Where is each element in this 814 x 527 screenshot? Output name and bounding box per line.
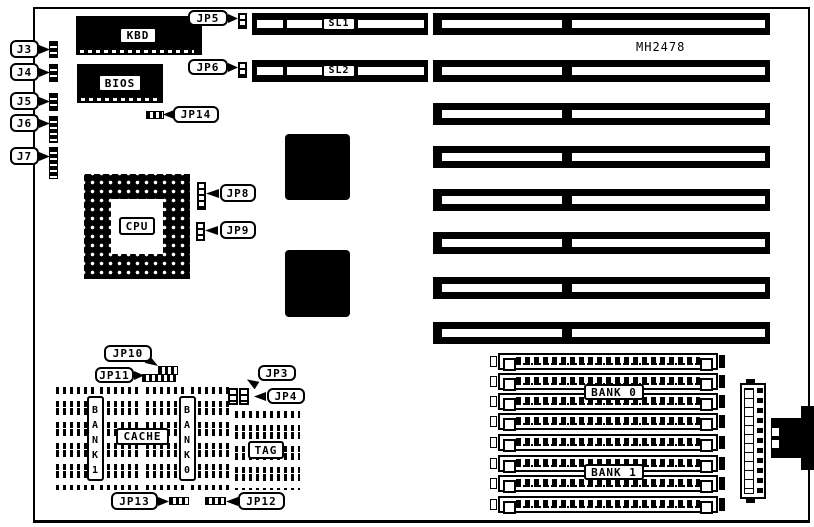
simm-tab [490, 458, 497, 469]
kbd-text: KBD [127, 30, 150, 41]
cpu-text: CPU [126, 221, 149, 232]
isa-slot-1 [433, 13, 770, 35]
connector-label-j3: J3 [10, 40, 39, 58]
jumper-label-jp8: JP8 [220, 184, 256, 202]
jumper-label-jp13: JP13 [111, 492, 158, 510]
jumper-label-jp6: JP6 [188, 59, 228, 75]
sl2-segment [257, 67, 283, 75]
jumper-label-jp11: JP11 [95, 367, 134, 383]
simm-tab [490, 356, 497, 367]
isa-slot-segment [442, 329, 562, 337]
isa-slot-segment [572, 110, 765, 118]
j4-text: J4 [17, 67, 32, 78]
simm-latch [503, 378, 516, 391]
jumper-jp13 [169, 497, 189, 505]
simm-tab [490, 376, 497, 387]
connector-label-j5: J5 [10, 92, 39, 110]
j6-text: J6 [17, 118, 32, 129]
j3-text: J3 [17, 44, 32, 55]
simm-tab [719, 375, 725, 388]
simm-latch [700, 398, 713, 411]
simm-tab [719, 355, 725, 368]
simm-tab [719, 415, 725, 428]
isa-slot-segment [442, 153, 562, 161]
cache-bank0-label: B A N K 0 [179, 396, 196, 481]
simm-contacts [516, 357, 700, 365]
tag-text: TAG [255, 445, 278, 456]
simm-latch [700, 439, 713, 452]
simm-tab [490, 416, 497, 427]
simm-latch [503, 418, 516, 431]
bios-chip-label: BIOS [98, 74, 142, 92]
simm-tab [719, 498, 725, 511]
jumper-label-jp12: JP12 [238, 492, 285, 510]
simm-latch [700, 501, 713, 514]
connector-j7 [49, 147, 58, 179]
simm-contacts [516, 500, 700, 508]
simm-latch [700, 378, 713, 391]
connector-j4 [49, 64, 58, 82]
simm-socket-5 [498, 434, 718, 451]
jumper-label-jp3: JP3 [258, 365, 296, 381]
bios-socket-pins [81, 98, 157, 101]
isa-slot-5 [433, 189, 770, 211]
simm-tab [719, 457, 725, 470]
keyboard-din-connector-plug [771, 418, 802, 458]
sl1-text: SL1 [328, 19, 349, 29]
isa-slot-segment [572, 196, 765, 204]
isa-slot-segment [442, 284, 562, 292]
simm-latch [503, 398, 516, 411]
jumper-label-jp14: JP14 [173, 106, 219, 123]
slot-label-sl1: SL1 [322, 17, 356, 31]
keyboard-din-notch [772, 440, 779, 448]
jumper-jp6 [238, 62, 247, 78]
simm-latch [503, 460, 516, 473]
isa-slot-segment [442, 239, 562, 247]
jumper-jp3-jp4-block2 [239, 388, 249, 405]
memory-bank1-label: BANK 1 [584, 464, 644, 480]
simm-socket-4 [498, 413, 718, 430]
power-connector-key-bottom [746, 498, 755, 503]
isa-slot-segment [442, 196, 562, 204]
simm-tab [719, 477, 725, 490]
kbd-chip-label: KBD [119, 27, 157, 44]
cache-text: CACHE [123, 431, 161, 442]
sl1-segment [358, 20, 424, 28]
connector-j6 [49, 116, 58, 143]
connector-j3 [49, 41, 58, 58]
power-connector [740, 383, 766, 499]
simm-latch [503, 358, 516, 371]
jumper-label-jp9: JP9 [220, 221, 256, 239]
simm-contacts [516, 438, 700, 446]
sl1-segment [257, 20, 283, 28]
jumper-jp3-jp4-block [228, 388, 238, 405]
jumper-jp9 [196, 222, 205, 241]
memory-bank1-text: BANK 1 [591, 467, 637, 478]
connector-label-j6: J6 [10, 114, 39, 132]
chipset-ic-2 [285, 250, 350, 317]
bank0-vertical-text: B A N K 0 [184, 400, 191, 478]
jp3-text: JP3 [266, 368, 289, 379]
keyboard-din-connector-body [801, 406, 814, 470]
cache-label: CACHE [116, 428, 169, 445]
simm-tab [490, 478, 497, 489]
sl2-segment [358, 67, 424, 75]
isa-slot-segment [572, 284, 765, 292]
isa-slot-8 [433, 322, 770, 344]
simm-latch [700, 358, 713, 371]
simm-tab [719, 436, 725, 449]
isa-slot-segment [572, 329, 765, 337]
bios-text: BIOS [105, 78, 136, 89]
isa-slot-7 [433, 277, 770, 299]
simm-tab [719, 395, 725, 408]
kbd-socket-pins [80, 50, 194, 53]
chipset-ic-1 [285, 134, 350, 200]
sl2-segment [287, 67, 322, 75]
slot-label-sl2: SL2 [322, 64, 356, 78]
jp13-text: JP13 [119, 496, 150, 507]
j7-text: J7 [17, 151, 32, 162]
jp12-text: JP12 [246, 496, 277, 507]
connector-j5 [49, 93, 58, 111]
isa-slot-3 [433, 103, 770, 125]
simm-contacts [516, 417, 700, 425]
jp8-text: JP8 [227, 188, 250, 199]
bank1-vertical-text: B A N K 1 [92, 400, 99, 478]
isa-slot-segment [572, 20, 765, 28]
simm-latch [503, 480, 516, 493]
isa-slot-6 [433, 232, 770, 254]
simm-tab [490, 396, 497, 407]
j5-text: J5 [17, 96, 32, 107]
cpu-label: CPU [119, 217, 155, 235]
jp14-text: JP14 [181, 109, 212, 120]
board-model-number: MH2478 [636, 40, 726, 54]
memory-bank0-text: BANK 0 [591, 387, 637, 398]
jumper-jp8 [197, 182, 206, 210]
simm-socket-1 [498, 353, 718, 370]
jumper-label-jp5: JP5 [188, 10, 228, 26]
motherboard-diagram: MH2478 J3 J4 J5 J6 J7 KBD BIOS JP5 JP6 J… [0, 0, 814, 527]
sl1-segment [287, 20, 322, 28]
isa-slot-segment [442, 20, 562, 28]
jumper-jp12 [205, 497, 226, 505]
sl2-text: SL2 [328, 66, 349, 76]
jp5-text: JP5 [197, 13, 220, 24]
isa-slot-segment [572, 153, 765, 161]
simm-latch [700, 418, 713, 431]
power-connector-pins [757, 388, 763, 494]
power-connector-pin-holes [744, 388, 754, 494]
tag-label: TAG [248, 441, 284, 459]
simm-tab [490, 437, 497, 448]
simm-latch [503, 439, 516, 452]
cache-bank0-chips-right [191, 387, 232, 490]
connector-label-j4: J4 [10, 63, 39, 81]
jumper-label-jp10: JP10 [104, 345, 152, 362]
jp11-text: JP11 [99, 370, 130, 381]
isa-slot-segment [442, 67, 562, 75]
cache-bank1-label: B A N K 1 [87, 396, 104, 481]
isa-slot-segment [572, 67, 765, 75]
jumper-jp14 [146, 111, 164, 119]
memory-bank0-label: BANK 0 [584, 384, 644, 400]
simm-contacts [516, 479, 700, 487]
jp4-text: JP4 [275, 391, 298, 402]
isa-slot-2 [433, 60, 770, 82]
isa-slot-segment [572, 239, 765, 247]
jumper-label-jp4: JP4 [267, 388, 305, 404]
keyboard-din-notch [772, 428, 779, 436]
jumper-jp5 [238, 13, 247, 29]
jumper-jp11 [142, 374, 176, 382]
connector-label-j7: J7 [10, 147, 39, 165]
simm-socket-8 [498, 496, 718, 513]
isa-slot-segment [442, 110, 562, 118]
simm-latch [503, 501, 516, 514]
jp10-text: JP10 [113, 348, 144, 359]
isa-slot-4 [433, 146, 770, 168]
simm-latch [700, 460, 713, 473]
jp9-text: JP9 [227, 225, 250, 236]
simm-latch [700, 480, 713, 493]
jp6-text: JP6 [197, 62, 220, 73]
simm-tab [490, 499, 497, 510]
